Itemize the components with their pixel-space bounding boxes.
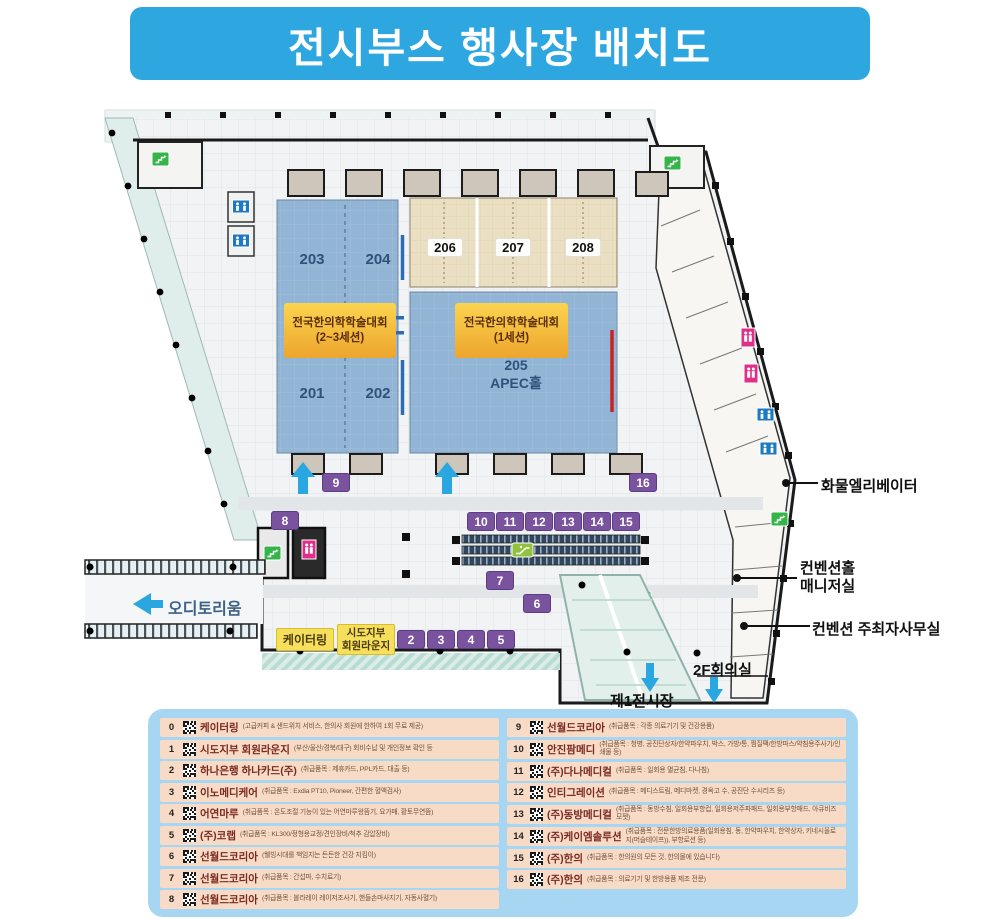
legend-company-desc: (취급품목 : 메디스트림, 메디마켓, 경옥고 수, 공진단 수시리즈 등) [609, 788, 785, 797]
legend-company-desc: (취급품목 : 동방수침, 일회용부항컵, 일회용저주파패드, 일회용부항패드,… [616, 806, 842, 824]
legend-company-desc: (취급품목 : 청병, 공진단상자/한약파우치, 박스, 가방/통, 찜질팩/한… [599, 741, 842, 759]
room-label-203: 203 [292, 251, 332, 268]
legend-row: 0 케이터링 (고급커피 & 샌드위치 서비스, 한의사 회원에 한하여 1회 … [160, 718, 499, 737]
qr-code-icon [530, 743, 543, 756]
legend-booth-number: 13 [511, 809, 526, 820]
hall-label-line2: (2~3세션) [284, 331, 396, 345]
legend-company-name: 시도지부 회원라운지 [200, 742, 290, 757]
plaza-band [238, 497, 763, 510]
restroom-blue-icon [233, 234, 250, 247]
legend-booth-number: 1 [164, 744, 179, 755]
hall-label-line1: 전국한의학학술대회 [284, 316, 396, 330]
stairs-icon [664, 156, 681, 170]
booth-marker-12: 12 [525, 512, 553, 531]
legend-row: 9 선월드코리아 (취급품목 : 각종 의료기기 및 건강용품) [507, 718, 846, 737]
freight-elevator-label: 화물엘리베이터 [821, 475, 918, 496]
legend-row: 4 어연마루 (취급품목 : 온도조절 기능이 있는 어연마루왕뜸기, 요가매,… [160, 804, 499, 823]
booth-marker-4: 4 [457, 630, 485, 649]
booth-marker-15: 15 [612, 512, 640, 531]
catering-label: 케이터링 [276, 628, 334, 651]
legend-company-desc: (취급품목 : 일회용 멸균침, 다나침) [616, 767, 709, 776]
legend-company-desc: (취급품목 : KL300/정형용교정/견인장비/척추 감압장비) [240, 831, 390, 840]
legend-company-desc: (취급품목 : 제휴카드, PPL카드, 대출 등) [301, 766, 410, 775]
qr-code-icon [183, 764, 196, 777]
legend-company-name: (주)동방메디컬 [547, 807, 612, 822]
title-banner: 전시부스 행사장 배치도 [130, 7, 870, 80]
room-label-208: 208 [566, 239, 600, 256]
qr-code-icon [183, 786, 196, 799]
escalator-icon [512, 543, 533, 557]
lounge-label-line1: 시도지부 [347, 627, 386, 640]
booth-marker-5: 5 [487, 630, 515, 649]
restroom-blue-icon [760, 442, 777, 455]
restroom-pink-icon [302, 540, 316, 559]
legend-booth-number: 16 [511, 874, 526, 885]
legend-booth-number: 8 [164, 894, 179, 905]
legend-row: 6 선월드코리아 (웰빙시대를 책임지는 든든한 건강 지킴이) [160, 847, 499, 866]
legend-company-desc: (부산/울산/경북/대구) 회비수납 및 개인정보 확인 등 [294, 745, 433, 754]
legend-company-name: (주)한의 [547, 872, 583, 887]
legend-row: 2 하나은행 하나카드(주) (취급품목 : 제휴카드, PPL카드, 대출 등… [160, 761, 499, 780]
lounge-label: 시도지부 회원라운지 [337, 624, 395, 655]
qr-code-icon [183, 893, 196, 906]
legend-company-desc: (취급품목 : 볼라레이 레이저조사기, 핸들손마사지기, 자동사혈기) [262, 895, 437, 904]
legend-row: 11 (주)다나메디컬 (취급품목 : 일회용 멸균침, 다나침) [507, 762, 846, 781]
legend-booth-number: 12 [511, 787, 526, 798]
legend-company-name: 선월드코리아 [200, 849, 258, 864]
legend-company-desc: (웰빙시대를 책임지는 든든한 건강 지킴이) [262, 852, 376, 861]
legend-column-right: 9 선월드코리아 (취급품목 : 각종 의료기기 및 건강용품) 10 안진팜메… [507, 718, 846, 908]
legend-company-desc: (취급품목 : 각종 의료기기 및 건강용품) [609, 723, 714, 732]
qr-code-icon [183, 829, 196, 842]
top-alcoves [288, 170, 668, 196]
booth-marker-6: 6 [523, 594, 551, 613]
legend-company-name: 어연마루 [200, 806, 239, 821]
legend-company-name: (주)다나메디컬 [547, 764, 612, 779]
legend-row: 5 (주)코랩 (취급품목 : KL300/정형용교정/견인장비/척추 감압장비… [160, 826, 499, 845]
qr-code-icon [183, 721, 196, 734]
hall-label-line2: (1세션) [455, 331, 568, 345]
qr-code-icon [530, 830, 543, 843]
room-label-207: 207 [496, 239, 530, 256]
legend-company-name: 선월드코리아 [200, 871, 258, 886]
legend-company-name: 하나은행 하나카드(주) [200, 763, 297, 778]
legend-company-desc: (취급품목 : 한의원의 모든 것, 한의몰에 있습니다) [587, 854, 720, 863]
legend-company-desc: (취급품목 : 간섭파, 수치료기) [262, 874, 341, 883]
qr-code-icon [530, 721, 543, 734]
booth-marker-16: 16 [629, 473, 657, 492]
page-title: 전시부스 행사장 배치도 [288, 14, 712, 74]
legend-company-name: (주)케이엠솔루션 [547, 829, 622, 844]
qr-code-icon [530, 873, 543, 886]
legend-row: 7 선월드코리아 (취급품목 : 간섭파, 수치료기) [160, 869, 499, 888]
room-label-201: 201 [292, 385, 332, 402]
booth-marker-9: 9 [322, 473, 350, 492]
booth-marker-14: 14 [583, 512, 611, 531]
legend-booth-number: 11 [511, 766, 526, 777]
room-label-204: 204 [358, 251, 398, 268]
page: 전시부스 행사장 배치도 203 204 201 202 206 207 208… [0, 0, 1000, 921]
legend-booth-number: 7 [164, 873, 179, 884]
legend-row: 3 이노메디케어 (취급품목 : Exdia PT10, Pioneer, 간편… [160, 783, 499, 802]
room-label-202: 202 [358, 385, 398, 402]
qr-code-icon [183, 872, 196, 885]
stair-room-topleft [138, 142, 202, 188]
qr-code-icon [530, 808, 543, 821]
legend-booth-number: 10 [511, 744, 526, 755]
stairs-icon [771, 512, 788, 526]
booth-marker-2: 2 [397, 630, 425, 649]
meeting-room-2f-label: 2F회의실 [693, 659, 752, 680]
legend-booth-number: 3 [164, 787, 179, 798]
legend-company-name: (주)한의 [547, 851, 583, 866]
qr-code-icon [183, 807, 196, 820]
legend-company-desc: (취급품목 : 의료기기 및 한방용품 제조 전문) [587, 876, 706, 885]
room-label-205-apec: 205 APEC홀 [471, 357, 561, 392]
legend-company-desc: (취급품목 : Exdia PT10, Pioneer, 간편한 혈액검사) [262, 788, 401, 797]
legend-booth-number: 6 [164, 851, 179, 862]
legend-company-name: 인티그레이션 [547, 785, 605, 800]
qr-code-icon [530, 852, 543, 865]
legend-booth-number: 15 [511, 853, 526, 864]
legend-booth-number: 2 [164, 765, 179, 776]
stairs-icon [152, 152, 169, 166]
qr-code-icon [530, 786, 543, 799]
legend-booth-number: 0 [164, 722, 179, 733]
legend-company-name: 안진팜메디 [547, 742, 595, 757]
legend-column-left: 0 케이터링 (고급커피 & 샌드위치 서비스, 한의사 회원에 한하여 1회 … [160, 718, 499, 908]
legend-company-name: 선월드코리아 [547, 720, 605, 735]
lounge-label-line2: 회원라운지 [342, 640, 390, 653]
legend-row: 16 (주)한의 (취급품목 : 의료기기 및 한방용품 제조 전문) [507, 870, 846, 889]
legend-company-desc: (취급품목 : 온도조절 기능이 있는 어연마루왕뜸기, 요가매, 황토무연뜸) [243, 809, 434, 818]
legend-row: 12 인티그레이션 (취급품목 : 메디스트림, 메디마켓, 경옥고 수, 공진… [507, 783, 846, 802]
qr-code-icon [530, 765, 543, 778]
booth-marker-10: 10 [467, 512, 495, 531]
legend-company-desc: (취급품목 : 전문한방의료용품(일회용침, 동, 한약파우치, 한약상자, 키… [626, 828, 842, 846]
legend-row: 1 시도지부 회원라운지 (부산/울산/경북/대구) 회비수납 및 개인정보 확… [160, 740, 499, 759]
hall-label-line1: 전국한의학학술대회 [455, 316, 568, 330]
apec-hall-label: APEC홀 [490, 375, 542, 391]
booth-marker-13: 13 [554, 512, 582, 531]
legend-company-name: 선월드코리아 [200, 892, 258, 907]
room-label-206: 206 [428, 239, 462, 256]
legend-row: 10 안진팜메디 (취급품목 : 청병, 공진단상자/한약파우치, 박스, 가방… [507, 740, 846, 760]
legend-row: 14 (주)케이엠솔루션 (취급품목 : 전문한방의료용품(일회용침, 동, 한… [507, 827, 846, 847]
booth-marker-11: 11 [496, 512, 524, 531]
legend-booth-number: 4 [164, 808, 179, 819]
hall-label-sessions-2-3: 전국한의학학술대회 (2~3세션) [284, 303, 396, 358]
legend-booth-number: 9 [511, 722, 526, 733]
exhibition-hall-1-label: 제1전시장 [610, 690, 674, 711]
restroom-pink-icon [741, 328, 755, 347]
booth-marker-7: 7 [486, 571, 514, 590]
legend-row: 15 (주)한의 (취급품목 : 한의원의 모든 것, 한의몰에 있습니다) [507, 849, 846, 868]
convention-manager-label: 컨벤션홀 매니저실 [800, 560, 855, 596]
legend-company-name: 케이터링 [200, 720, 239, 735]
legend-row: 8 선월드코리아 (취급품목 : 볼라레이 레이저조사기, 핸들손마사지기, 자… [160, 890, 499, 909]
legend-booth-number: 5 [164, 830, 179, 841]
hall-label-session-1: 전국한의학학술대회 (1세션) [455, 303, 568, 358]
legend-company-name: (주)코랩 [200, 828, 236, 843]
restroom-blue-icon [757, 408, 774, 421]
qr-code-icon [183, 743, 196, 756]
legend-company-desc: (고급커피 & 샌드위치 서비스, 한의사 회원에 한하여 1회 무료 제공) [243, 723, 423, 732]
legend-row: 13 (주)동방메디컬 (취급품목 : 동방수침, 일회용부항컵, 일회용저주파… [507, 805, 846, 825]
restroom-blue-icon [233, 200, 250, 213]
organizer-office-label: 컨벤션 주최자사무실 [812, 618, 940, 639]
booth-marker-3: 3 [427, 630, 455, 649]
room-label-205: 205 [504, 357, 527, 373]
legend-panel: 0 케이터링 (고급커피 & 샌드위치 서비스, 한의사 회원에 한하여 1회 … [148, 709, 858, 917]
stairs-icon [264, 546, 281, 560]
manager-label-line2: 매니저실 [800, 578, 855, 595]
legend-company-name: 이노메디케어 [200, 785, 258, 800]
restroom-pink-icon [744, 364, 758, 383]
booth-marker-8: 8 [271, 511, 299, 530]
manager-label-line1: 컨벤션홀 [800, 560, 855, 577]
auditorium-label: 오디토리움 [168, 595, 242, 619]
qr-code-icon [183, 850, 196, 863]
legend-booth-number: 14 [511, 831, 526, 842]
